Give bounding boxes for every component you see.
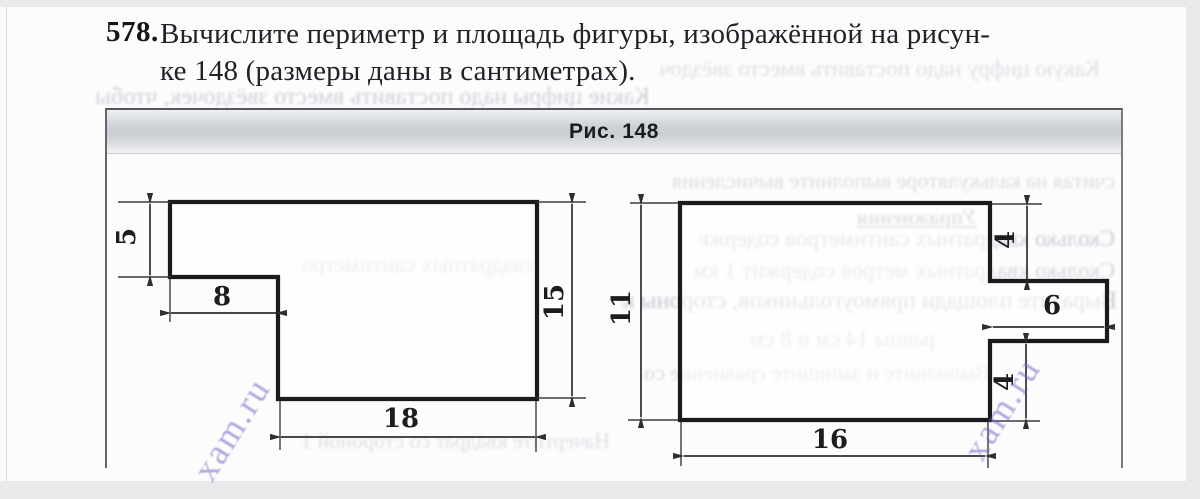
dim-label-11: 11 xyxy=(597,283,647,333)
dim-label-18: 18 xyxy=(371,399,431,439)
dim-label-16: 16 xyxy=(800,420,860,460)
dim-label-15: 15 xyxy=(530,277,580,327)
dim-label-6: 6 xyxy=(1027,286,1077,326)
dim-label-4-top: 4 xyxy=(986,220,1026,260)
dim-label-5: 5 xyxy=(107,217,147,257)
scanned-textbook-page: Какую цифру надо поставить вместо звёздо… xyxy=(0,0,1200,499)
dim-label-8: 8 xyxy=(197,277,247,317)
